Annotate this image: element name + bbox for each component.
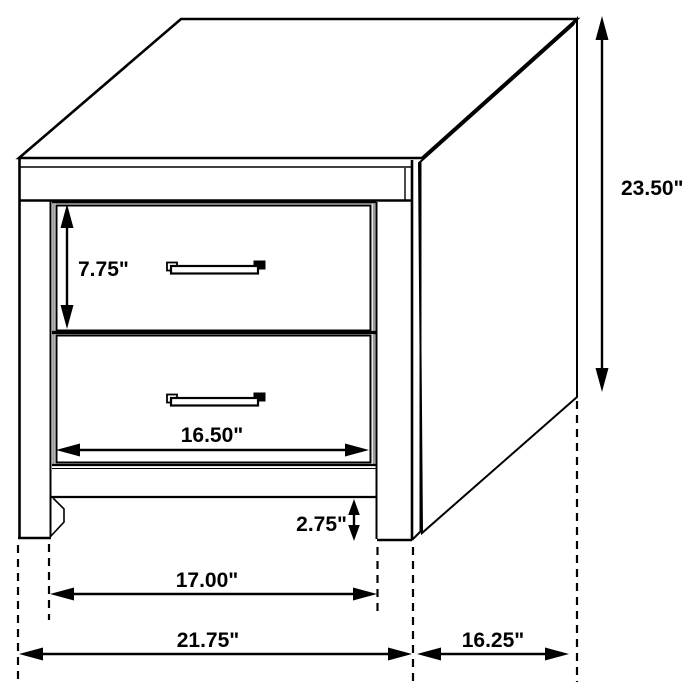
nightstand-diagram-svg: 23.50" 7.75" 16.50" 2.75" 17.00" 21.75" …	[0, 0, 700, 700]
dim-depth-label: 16.25"	[462, 629, 525, 652]
dim-overall-height-label: 23.50"	[621, 177, 684, 200]
dim-drawer-width-label: 16.50"	[181, 424, 244, 447]
arrowhead-up-icon	[596, 16, 609, 40]
arrowhead-left-icon	[19, 648, 43, 661]
arrowhead-up-icon	[348, 499, 360, 515]
arrowhead-left-icon	[50, 588, 74, 601]
dim-depth: 16.25"	[417, 629, 569, 661]
arrowhead-right-icon	[353, 588, 377, 601]
left-leg-inner-face	[51, 498, 64, 536]
dimension-diagram: 23.50" 7.75" 16.50" 2.75" 17.00" 21.75" …	[0, 0, 700, 700]
dim-between-legs-width-label: 17.00"	[176, 569, 239, 592]
right-leg-side-bottom	[412, 531, 421, 540]
arrowhead-right-icon	[545, 648, 569, 661]
arrowhead-down-icon	[348, 525, 360, 541]
dim-overall-width-label: 21.75"	[177, 629, 240, 652]
arrowhead-right-icon	[388, 648, 412, 661]
dim-leg-height: 2.75"	[296, 499, 360, 541]
dim-leg-height-label: 2.75"	[296, 513, 347, 536]
arrowhead-left-icon	[417, 648, 441, 661]
dim-drawer-opening-height-label: 7.75"	[78, 258, 129, 281]
dim-between-legs-width: 17.00"	[50, 569, 377, 601]
dim-overall-height: 23.50"	[596, 16, 684, 392]
dim-overall-width: 21.75"	[19, 629, 412, 661]
arrowhead-down-icon	[596, 368, 609, 392]
